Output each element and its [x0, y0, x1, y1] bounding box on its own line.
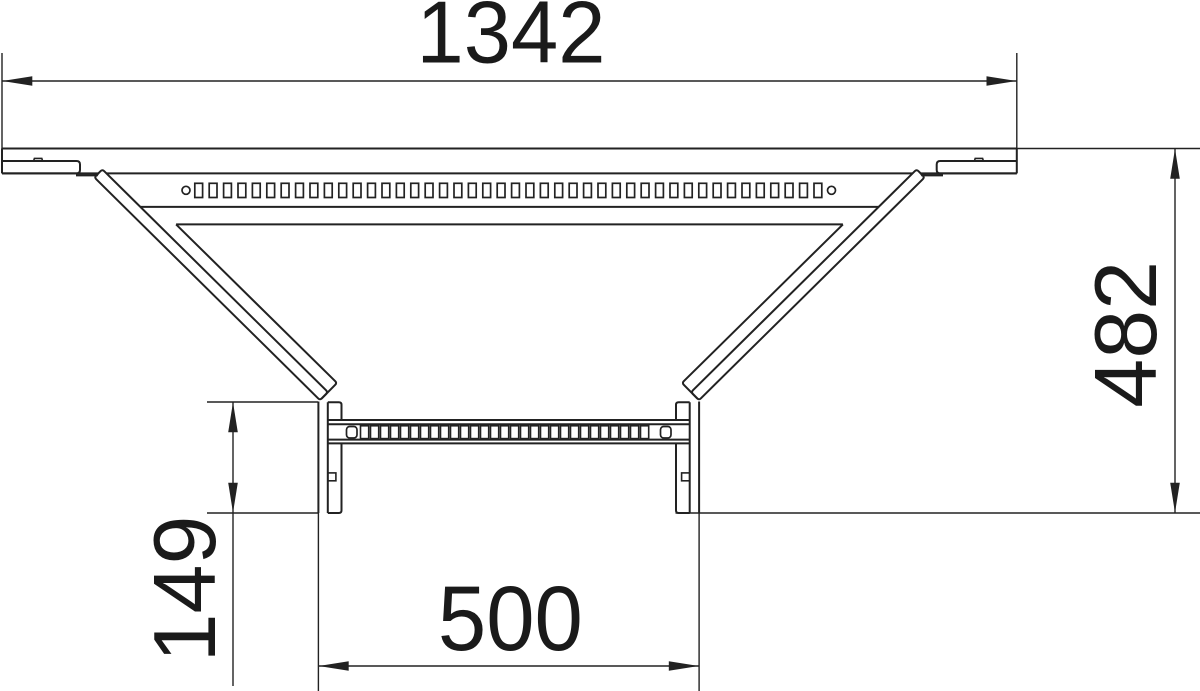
svg-text:1342: 1342	[417, 0, 606, 82]
svg-text:149: 149	[135, 516, 234, 663]
svg-text:482: 482	[1076, 261, 1175, 408]
svg-text:500: 500	[438, 567, 583, 670]
